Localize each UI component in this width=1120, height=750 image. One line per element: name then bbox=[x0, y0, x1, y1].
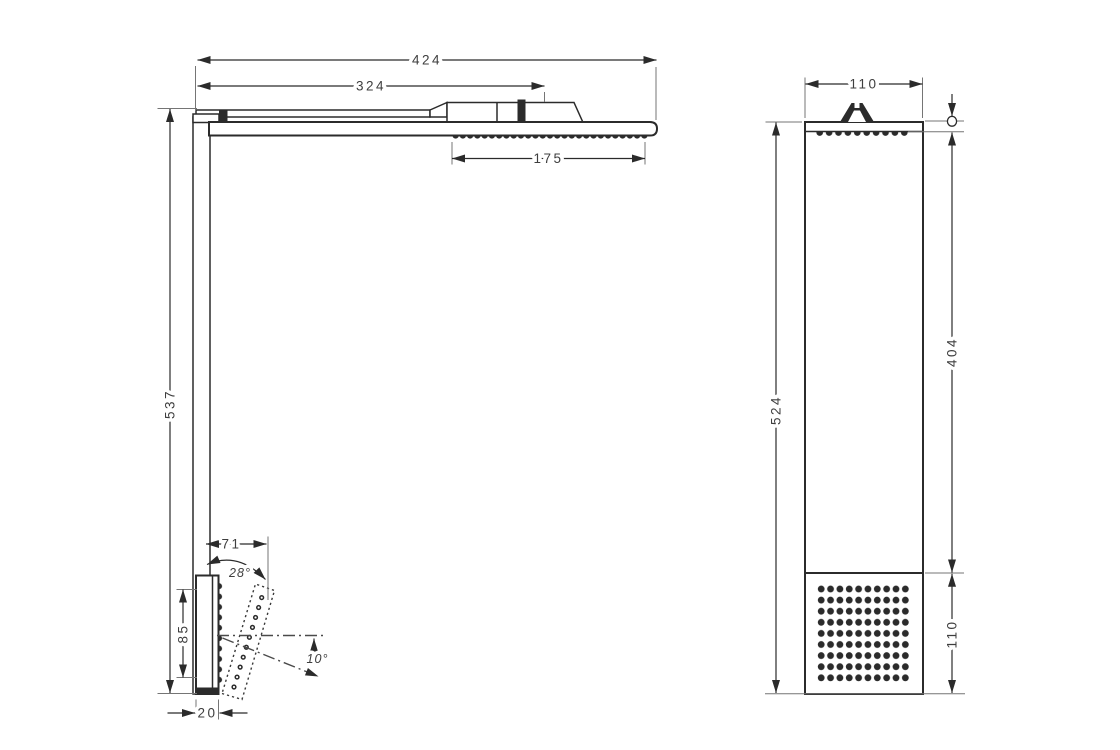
side-wall-spacer bbox=[219, 111, 228, 123]
shower-panel-dimension-drawing: 424 324 175 537 71 bbox=[0, 0, 1120, 750]
dim-front-spray-height-label: 110 bbox=[945, 619, 960, 648]
side-body-spray-tilted-outline bbox=[222, 584, 275, 700]
dim-total-height-label: 537 bbox=[163, 389, 178, 419]
side-top-strip-ramp bbox=[430, 103, 447, 118]
dim-body-spray-depth-label: 20 bbox=[197, 706, 217, 721]
side-body-spray bbox=[196, 576, 219, 695]
side-body-spray-base bbox=[197, 688, 218, 694]
dim-head-spray-width: 175 bbox=[452, 142, 645, 166]
dim-front-total-height-label: 524 bbox=[769, 395, 784, 425]
dim-head-spray-width-label: 175 bbox=[533, 151, 563, 166]
side-body-spray-nozzles bbox=[219, 581, 224, 686]
side-top-strip bbox=[196, 110, 430, 117]
technical-drawing-page: 424 324 175 537 71 bbox=[0, 0, 1120, 750]
dim-front-upper-height: 404 bbox=[925, 133, 964, 574]
side-valve-block bbox=[447, 103, 583, 123]
dim-front-width-label: 110 bbox=[849, 77, 878, 92]
dim-front-spray-height: 110 bbox=[945, 574, 960, 693]
front-body-spray-dot-grid bbox=[817, 584, 911, 684]
front-head-nozzle-row bbox=[815, 132, 909, 139]
front-view bbox=[805, 103, 923, 694]
dim-body-spray-depth: 20 bbox=[168, 700, 248, 721]
dim-total-height: 537 bbox=[158, 109, 198, 694]
dim-front-upper-height-label: 404 bbox=[945, 337, 960, 367]
dim-body-spray-down-angle-label: 10° bbox=[307, 652, 329, 666]
side-handle-screw bbox=[518, 100, 526, 123]
dim-body-spray-height-label: 85 bbox=[176, 623, 191, 643]
top-edge-callout-circle bbox=[947, 116, 956, 126]
side-view-dimensions: 424 324 175 537 71 bbox=[158, 53, 657, 721]
side-head-nozzle-row bbox=[452, 135, 648, 142]
side-shower-arm bbox=[209, 122, 657, 136]
dim-upper-width: 324 bbox=[198, 79, 545, 103]
dim-body-spray-reach-label: 71 bbox=[221, 537, 241, 552]
dim-upper-width-label: 324 bbox=[356, 79, 386, 94]
dim-body-spray-tilt-label: 28° bbox=[228, 566, 251, 580]
dim-total-width-label: 424 bbox=[412, 53, 442, 68]
side-view bbox=[193, 100, 657, 700]
